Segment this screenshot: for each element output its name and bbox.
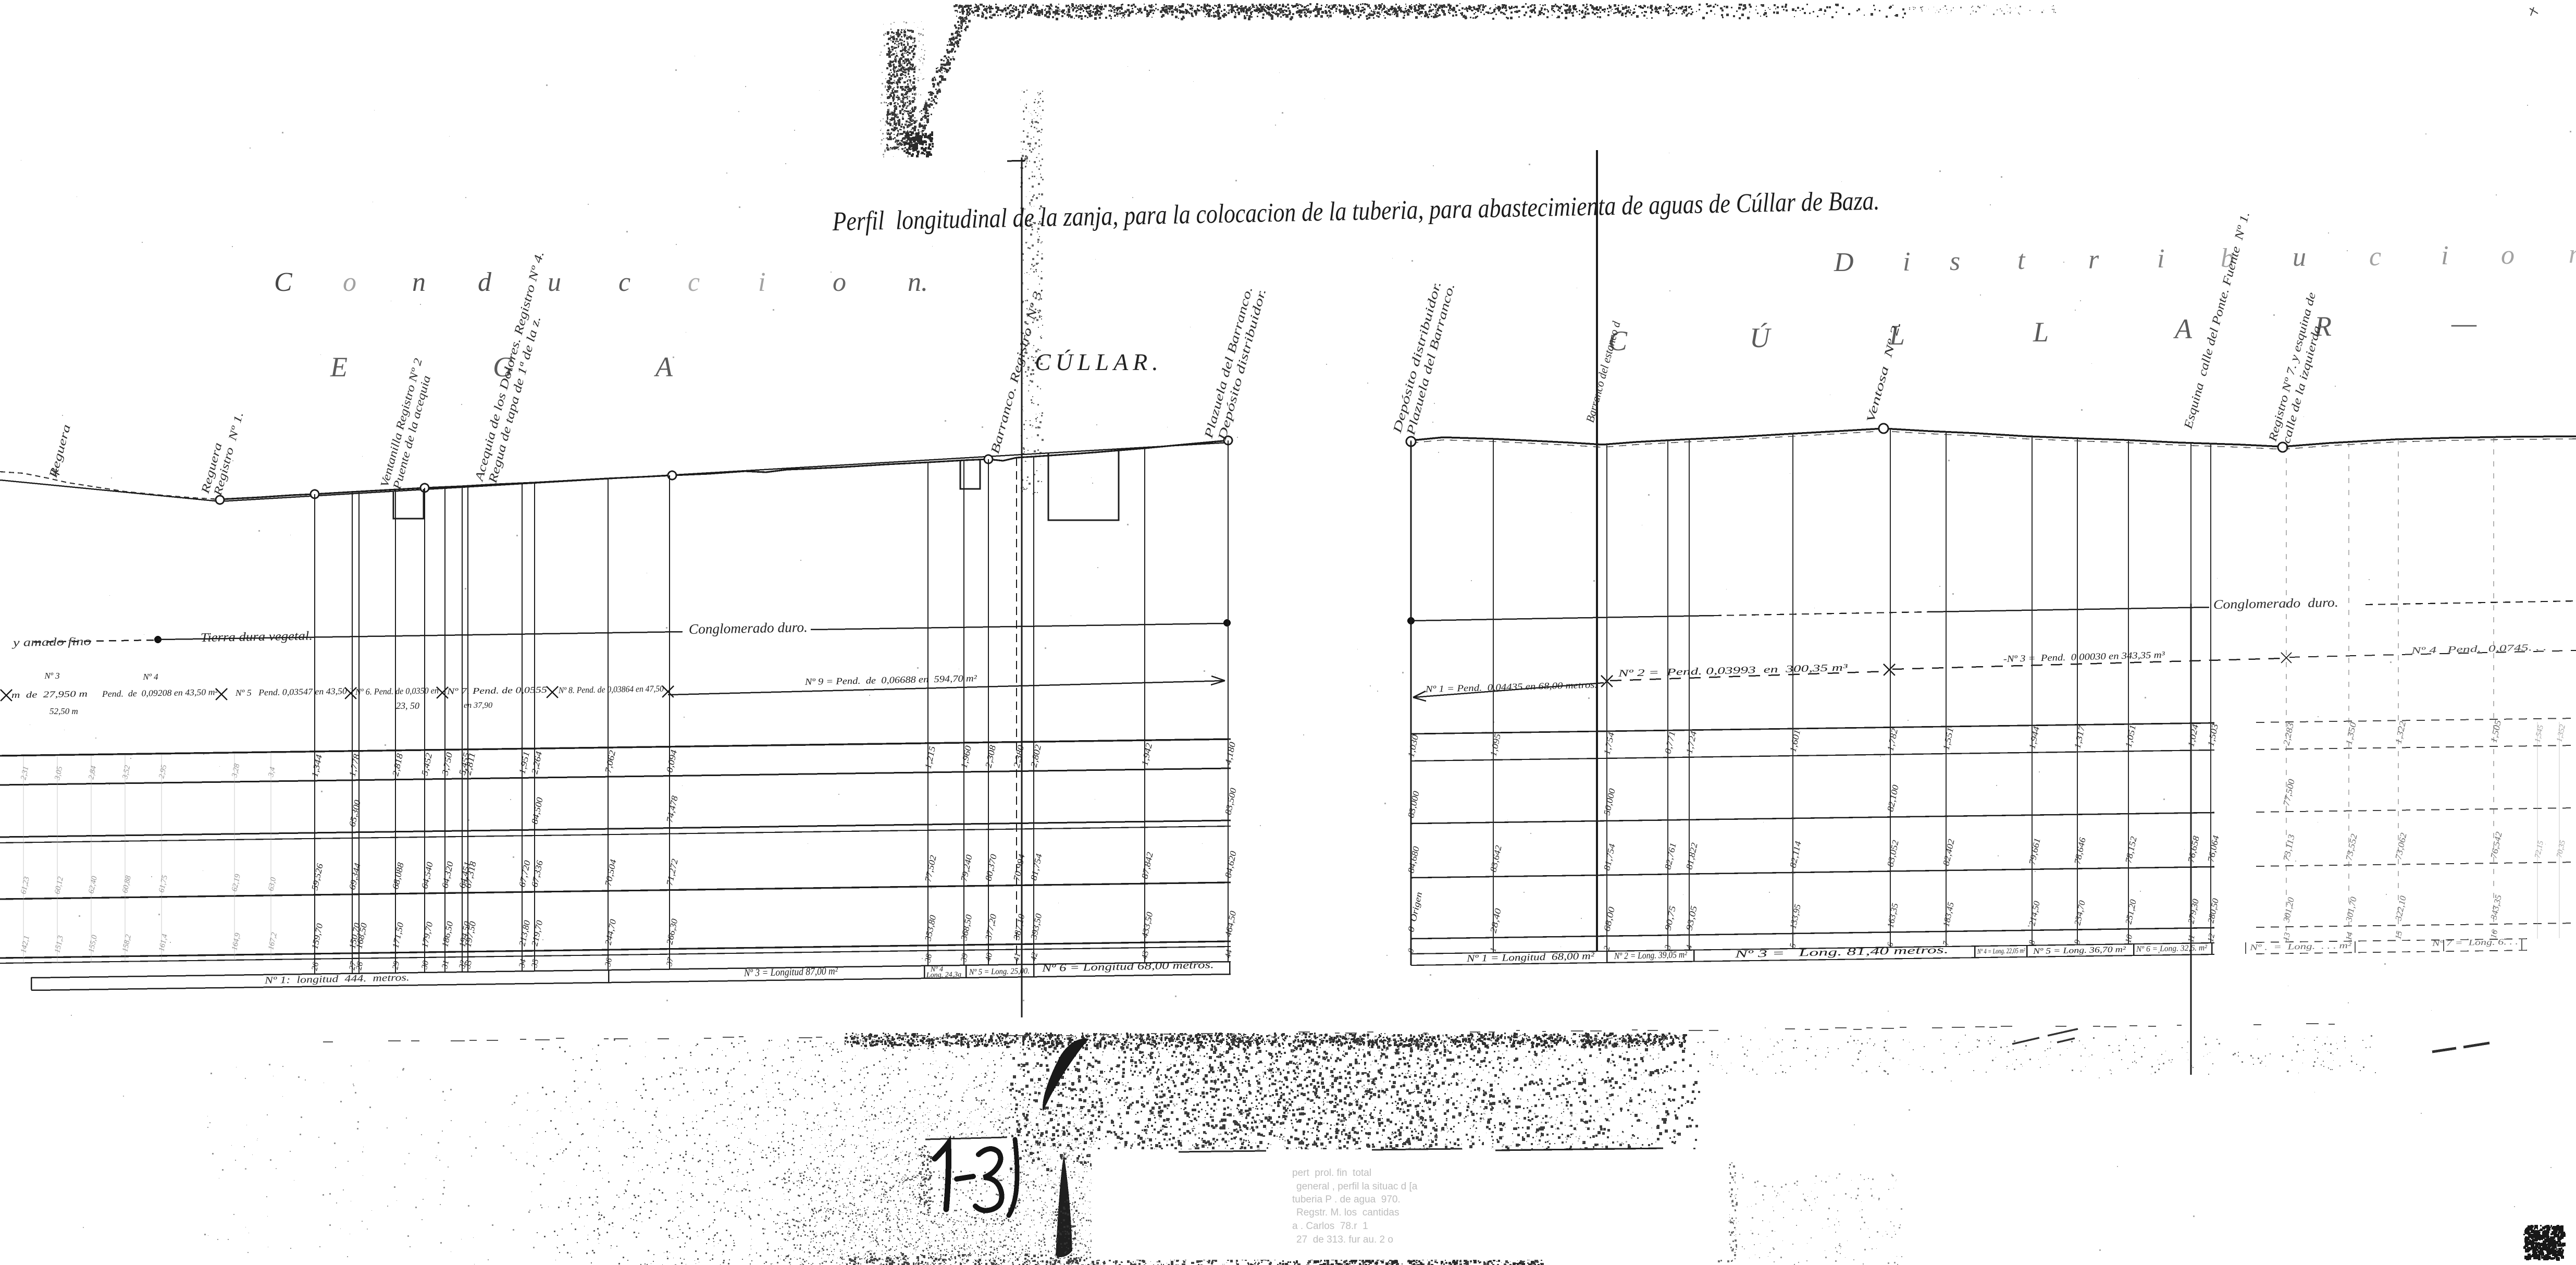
svg-text:o: o [833, 267, 846, 297]
svg-text:84,620: 84,620 [1223, 850, 1239, 878]
svg-text:1,724: 1,724 [1684, 730, 1699, 755]
svg-text:65,300: 65,300 [347, 799, 363, 827]
svg-text:11: 11 [2186, 934, 2197, 943]
svg-text:2,84: 2,84 [87, 765, 98, 780]
svg-text:244,70: 244,70 [603, 918, 618, 945]
svg-text:70,35: 70,35 [2555, 839, 2567, 858]
svg-text:10: 10 [2124, 934, 2134, 944]
svg-text:62,40: 62,40 [87, 875, 99, 894]
svg-text:0,771: 0,771 [1663, 730, 1677, 755]
svg-text:50,000: 50,000 [1602, 787, 1617, 816]
svg-text:E: E [330, 351, 348, 383]
svg-text:81,754: 81,754 [1602, 842, 1617, 871]
svg-text:43: 43 [1140, 950, 1150, 960]
svg-text:4,180: 4,180 [1223, 741, 1237, 766]
svg-text:72,15: 72,15 [2533, 840, 2545, 859]
svg-text:1,960: 1,960 [959, 744, 973, 769]
svg-text:c: c [2369, 242, 2381, 272]
svg-text:1,352: 1,352 [2555, 723, 2567, 743]
svg-text:163,35: 163,35 [1885, 902, 1900, 929]
svg-text:82,402: 82,402 [1941, 838, 1956, 866]
svg-text:76,542: 76,542 [2488, 830, 2504, 859]
svg-text:1,344: 1,344 [309, 753, 324, 778]
svg-text:Regstr. M. los cantidas: Regstr. M. los cantidas [1296, 1207, 1399, 1218]
svg-text:2,31: 2,31 [19, 766, 30, 781]
svg-text:Nº 3 = Long. 81,40 metros.: Nº 3 = Long. 81,40 metros. [1734, 944, 1949, 960]
svg-text:28: 28 [354, 961, 365, 971]
svg-text:76,064: 76,064 [2206, 834, 2221, 863]
svg-text:Nº 3: Nº 3 [44, 671, 59, 681]
svg-text:60,88: 60,88 [121, 875, 133, 894]
svg-text:60,12: 60,12 [53, 876, 65, 895]
svg-text:183,45: 183,45 [1941, 901, 1956, 928]
svg-text:Ventosa Nº 2.: Ventosa Nº 2. [1864, 320, 1903, 424]
svg-text:L: L [2033, 316, 2049, 348]
svg-text:179,70: 179,70 [419, 920, 435, 948]
svg-text:28,40: 28,40 [1488, 907, 1503, 934]
svg-text:d: d [478, 267, 492, 297]
svg-text:62,19: 62,19 [230, 873, 242, 892]
svg-text:61,23: 61,23 [19, 876, 31, 894]
svg-text:251,20: 251,20 [2123, 898, 2138, 925]
svg-text:79,661: 79,661 [2027, 837, 2042, 866]
svg-text:3,05: 3,05 [53, 765, 64, 781]
svg-text:3,750: 3,750 [440, 751, 454, 777]
svg-text:40: 40 [984, 952, 994, 962]
svg-text:15: 15 [2394, 930, 2404, 940]
svg-text:1,505: 1,505 [2488, 719, 2503, 744]
svg-text:81,754: 81,754 [1029, 852, 1044, 881]
svg-text:73,113: 73,113 [2281, 833, 2296, 862]
svg-text:Nº 7. Pend. de 0,0555: Nº 7. Pend. de 0,0555 [446, 685, 547, 696]
svg-text:77,500: 77,500 [2281, 778, 2297, 806]
svg-text:2,802: 2,802 [1029, 743, 1043, 768]
svg-text:164,9: 164,9 [230, 932, 242, 951]
svg-text:219,70: 219,70 [529, 919, 544, 947]
svg-text:82,114: 82,114 [1788, 840, 1803, 868]
svg-text:2,380: 2,380 [1011, 744, 1026, 769]
svg-text:44: 44 [1223, 949, 1234, 959]
svg-text:27 de 313. fur au. 2 o: 27 de 313. fur au. 2 o [1296, 1234, 1393, 1245]
svg-text:Nº 1: longitud 444. metros.: Nº 1: longitud 444. metros. [264, 972, 410, 986]
svg-text:Pend. de 0,09208 en 43,50 m²: Pend. de 0,09208 en 43,50 m² [102, 687, 218, 699]
svg-text:39: 39 [959, 953, 970, 963]
svg-text:343,35: 343,35 [2488, 894, 2504, 921]
svg-text:279,30: 279,30 [2186, 898, 2201, 924]
svg-text:63,0: 63,0 [267, 876, 278, 891]
svg-text:70,994: 70,994 [1011, 853, 1027, 881]
svg-text:80,370: 80,370 [983, 853, 999, 881]
svg-text:87,842: 87,842 [1140, 851, 1155, 879]
svg-text:o: o [2501, 240, 2515, 270]
svg-text:266,30: 266,30 [664, 917, 679, 945]
svg-text:1,317: 1,317 [2072, 724, 2087, 750]
svg-text:52,50 m: 52,50 m [49, 706, 78, 716]
svg-text:7,062: 7,062 [603, 749, 617, 774]
svg-text:61,75: 61,75 [157, 874, 169, 893]
svg-text:Barranco del estanco d: Barranco del estanco d [1583, 320, 1623, 424]
svg-text:1,215: 1,215 [923, 745, 937, 770]
svg-text:2,818: 2,818 [390, 752, 405, 777]
svg-text:29: 29 [391, 961, 401, 971]
svg-text:2: 2 [1602, 945, 1612, 951]
svg-text:23, 50: 23, 50 [396, 701, 419, 711]
svg-text:161,4: 161,4 [157, 933, 169, 952]
svg-text:1: 1 [1489, 947, 1498, 952]
svg-text:280,50: 280,50 [2206, 897, 2221, 924]
svg-text:34: 34 [517, 959, 528, 969]
svg-text:90,75: 90,75 [1663, 905, 1678, 931]
svg-text:Nº 2 = Long. 39,05 m²: Nº 2 = Long. 39,05 m² [1614, 949, 1688, 961]
svg-text:1,545: 1,545 [2533, 724, 2545, 743]
svg-text:Nº 4 Pend. 0,0745. . .: Nº 4 Pend. 0,0745. . . [2410, 642, 2547, 656]
svg-text:33: 33 [463, 960, 474, 970]
svg-text:Reguera: Reguera [46, 423, 73, 480]
svg-text:64,540: 64,540 [419, 861, 435, 889]
svg-text:Nº . = Long. . . . m²: Nº . = Long. . . . m² [2249, 941, 2352, 952]
svg-text:142,1: 142,1 [19, 935, 31, 953]
svg-text:0,094: 0,094 [664, 748, 679, 773]
svg-text:a . Carlos 78.r 1: a . Carlos 78.r 1 [1292, 1221, 1368, 1232]
svg-text:64,320: 64,320 [440, 860, 455, 889]
svg-text:76,658: 76,658 [2186, 834, 2201, 863]
svg-text:353,80: 353,80 [923, 914, 938, 942]
svg-text:42: 42 [1029, 952, 1039, 962]
svg-text:1,551: 1,551 [1941, 727, 1955, 751]
svg-text:73,552: 73,552 [2344, 832, 2359, 861]
svg-text:s: s [1950, 247, 1960, 276]
svg-text:38: 38 [923, 953, 934, 964]
svg-text:151,3: 151,3 [53, 935, 65, 953]
svg-text:3,52: 3,52 [121, 764, 132, 780]
svg-text:2,283: 2,283 [2281, 722, 2296, 746]
svg-text:5,452: 5,452 [419, 752, 434, 777]
svg-text:393,50: 393,50 [1029, 912, 1044, 940]
svg-text:83,500: 83,500 [1223, 787, 1239, 815]
svg-text:Nº 3 = Longitud 87,00 m²: Nº 3 = Longitud 87,00 m² [744, 965, 838, 979]
svg-text:69,344: 69,344 [347, 862, 363, 890]
svg-text:o: o [343, 267, 356, 297]
svg-text:Nº 8. Pend. de 0,03864 en 47,5: Nº 8. Pend. de 0,03864 en 47,50 [558, 683, 664, 695]
svg-text:36: 36 [603, 957, 614, 968]
svg-text:Nº 4: Nº 4 [142, 672, 158, 682]
svg-text:301,70: 301,70 [2344, 895, 2359, 923]
svg-text:159,70: 159,70 [309, 922, 325, 950]
svg-text:D: D [1834, 248, 1854, 277]
svg-text:Nº 1 = Pend. 0,04435 en 68,00: Nº 1 = Pend. 0,04435 en 68,00 metros. [1425, 679, 1597, 694]
svg-text:377,20: 377,20 [983, 913, 998, 941]
svg-text:1,754: 1,754 [1602, 731, 1616, 756]
svg-text:Perfil longitudinal de la zan: Perfil longitudinal de la zanja, para la… [832, 186, 1880, 237]
svg-text:30: 30 [420, 960, 430, 971]
svg-text:301,20: 301,20 [2281, 896, 2296, 923]
svg-text:pert prol. fin total: pert prol. fin total [1292, 1168, 1371, 1178]
svg-text:Nº 9 = Pend. de 0,06688 en: Nº 9 = Pend. de 0,06688 en 594,70 m² [804, 673, 977, 687]
svg-text:93,05: 93,05 [1684, 905, 1699, 931]
svg-text:Nº 7 = Long. 6. . .: Nº 7 = Long. 6. . . [2431, 938, 2518, 948]
svg-text:1,503: 1,503 [2206, 723, 2220, 747]
svg-text:71,272: 71,272 [664, 857, 680, 886]
svg-text:—: — [2451, 308, 2477, 339]
svg-text:Ú: Ú [1750, 322, 1772, 353]
svg-text:Nº 6. Pend. de 0,0350 en: Nº 6. Pend. de 0,0350 en [355, 685, 439, 697]
svg-text:77,502: 77,502 [923, 854, 938, 882]
svg-text:9: 9 [2073, 939, 2082, 944]
svg-text:u: u [2293, 242, 2306, 272]
svg-text:83,642: 83,642 [1488, 844, 1504, 873]
svg-text:133,95: 133,95 [1788, 903, 1803, 930]
svg-text:r: r [2088, 245, 2099, 275]
svg-text:78,152: 78,152 [2123, 835, 2139, 864]
svg-text:155,0: 155,0 [87, 934, 99, 953]
svg-text:368,50: 368,50 [959, 913, 974, 941]
svg-text:0 Origen: 0 Origen [1406, 891, 1424, 933]
svg-text:234,70: 234,70 [2072, 899, 2087, 926]
svg-text:i: i [1903, 247, 1910, 277]
svg-text:tuberia P . de agua 970.: tuberia P . de agua 970. [1292, 1194, 1401, 1205]
svg-text:1,601: 1,601 [1788, 729, 1802, 753]
svg-text:41: 41 [1012, 952, 1022, 962]
svg-text:i: i [2157, 244, 2164, 274]
svg-text:Nº 5 = Long. 36,70 m²: Nº 5 = Long. 36,70 m² [2032, 945, 2126, 956]
svg-text:167,2: 167,2 [267, 931, 279, 951]
svg-text:387,10: 387,10 [1011, 913, 1026, 941]
svg-text:322,10: 322,10 [2393, 894, 2408, 922]
svg-text:12: 12 [2206, 933, 2216, 943]
svg-text:433,50: 433,50 [1140, 911, 1155, 938]
svg-text:Nº 1 = Longitud 68,00 m²: Nº 1 = Longitud 68,00 m² [1466, 951, 1594, 964]
svg-text:2,264: 2,264 [529, 750, 544, 775]
svg-text:464,50: 464,50 [1223, 910, 1238, 937]
svg-text:37: 37 [665, 956, 675, 967]
svg-text:C: C [274, 267, 293, 297]
svg-text:84,500: 84,500 [529, 796, 545, 825]
svg-text:1,024: 1,024 [2186, 723, 2200, 748]
svg-text:Nº 6 = Long. 32,6. m²: Nº 6 = Long. 32,6. m² [2136, 943, 2208, 954]
svg-text:1,322: 1,322 [2393, 720, 2408, 745]
svg-text:59,526: 59,526 [309, 862, 325, 891]
svg-text:Long. 24,3a: Long. 24,3a [926, 971, 962, 979]
svg-text:8: 8 [2027, 939, 2037, 945]
svg-text:1,051: 1,051 [2123, 724, 2138, 748]
svg-text:70,504: 70,504 [603, 858, 618, 887]
svg-text:81,822: 81,822 [1684, 841, 1700, 870]
svg-text:u: u [548, 267, 561, 297]
svg-text:84,680: 84,680 [1406, 845, 1421, 874]
svg-text:Conglomerado duro.: Conglomerado duro. [2213, 596, 2338, 612]
svg-text:1,782: 1,782 [1885, 727, 1900, 752]
svg-text:Nº 6 = Longitud 68,00 metros.: Nº 6 = Longitud 68,00 metros. [1041, 959, 1214, 974]
svg-text:73,062: 73,062 [2393, 831, 2409, 860]
svg-text:79,240: 79,240 [959, 853, 974, 882]
svg-text:171,50: 171,50 [390, 921, 405, 949]
svg-text:1,350: 1,350 [2344, 721, 2358, 746]
svg-text:1,951: 1,951 [517, 751, 531, 775]
svg-text:n: n [412, 267, 426, 297]
svg-text:83,000: 83,000 [1406, 790, 1421, 818]
svg-text:general , perfil la situac d [: general , perfil la situac d [a [1296, 1181, 1418, 1192]
svg-text:26: 26 [310, 962, 320, 972]
svg-text:Nº 5 = Long. 25,00.: Nº 5 = Long. 25,00. [969, 967, 1030, 977]
svg-text:n.: n. [908, 267, 928, 297]
svg-text:186,50: 186,50 [440, 920, 455, 948]
svg-text:m de 27,950 m: m de 27,950 m [11, 689, 88, 700]
svg-text:78,646: 78,646 [2072, 836, 2088, 865]
svg-text:2,308: 2,308 [983, 744, 998, 769]
svg-text:68,088: 68,088 [390, 861, 406, 890]
svg-text:c: c [618, 267, 630, 297]
svg-text:1,944: 1,944 [2027, 725, 2041, 750]
svg-text:158,2: 158,2 [121, 934, 133, 953]
svg-text:74,478: 74,478 [664, 794, 680, 823]
svg-text:214,50: 214,50 [2027, 900, 2042, 926]
svg-text:2,95: 2,95 [157, 764, 168, 779]
svg-text:n: n [2569, 239, 2576, 269]
svg-text:i: i [2441, 241, 2448, 271]
svg-text:31: 31 [440, 960, 451, 970]
svg-text:i: i [758, 267, 765, 297]
svg-text:1,095: 1,095 [1488, 733, 1503, 757]
svg-text:Nº 5 Pend. 0,03547 en 43,50: Nº 5 Pend. 0,03547 en 43,50 [235, 686, 348, 698]
svg-text:Nº 4 = Long. 22,05 m²: Nº 4 = Long. 22,05 m² [1977, 947, 2026, 956]
svg-text:A: A [2173, 313, 2193, 345]
svg-text:14: 14 [2344, 931, 2355, 941]
svg-text:3,4: 3,4 [267, 766, 277, 778]
svg-text:Conglomerado duro.: Conglomerado duro. [689, 619, 808, 637]
svg-text:t: t [2017, 245, 2026, 275]
svg-text:82,100: 82,100 [1885, 783, 1901, 812]
svg-text:A: A [654, 351, 673, 383]
svg-text:83,052: 83,052 [1885, 839, 1901, 867]
svg-text:82,761: 82,761 [1663, 842, 1678, 870]
svg-text:3,28: 3,28 [230, 763, 241, 778]
svg-text:Tierra dura vegetal.: Tierra dura vegetal. [201, 629, 313, 645]
svg-text:c: c [688, 267, 700, 297]
svg-text:13: 13 [2282, 932, 2292, 942]
svg-text:y amado fino: y amado fino [11, 634, 91, 649]
svg-text:68,00: 68,00 [1602, 905, 1617, 932]
svg-text:1,942: 1,942 [1140, 742, 1154, 767]
svg-text:CÚLLAR.: CÚLLAR. [1035, 349, 1163, 375]
svg-text:1,030: 1,030 [1406, 733, 1420, 758]
svg-text:35: 35 [530, 959, 540, 969]
